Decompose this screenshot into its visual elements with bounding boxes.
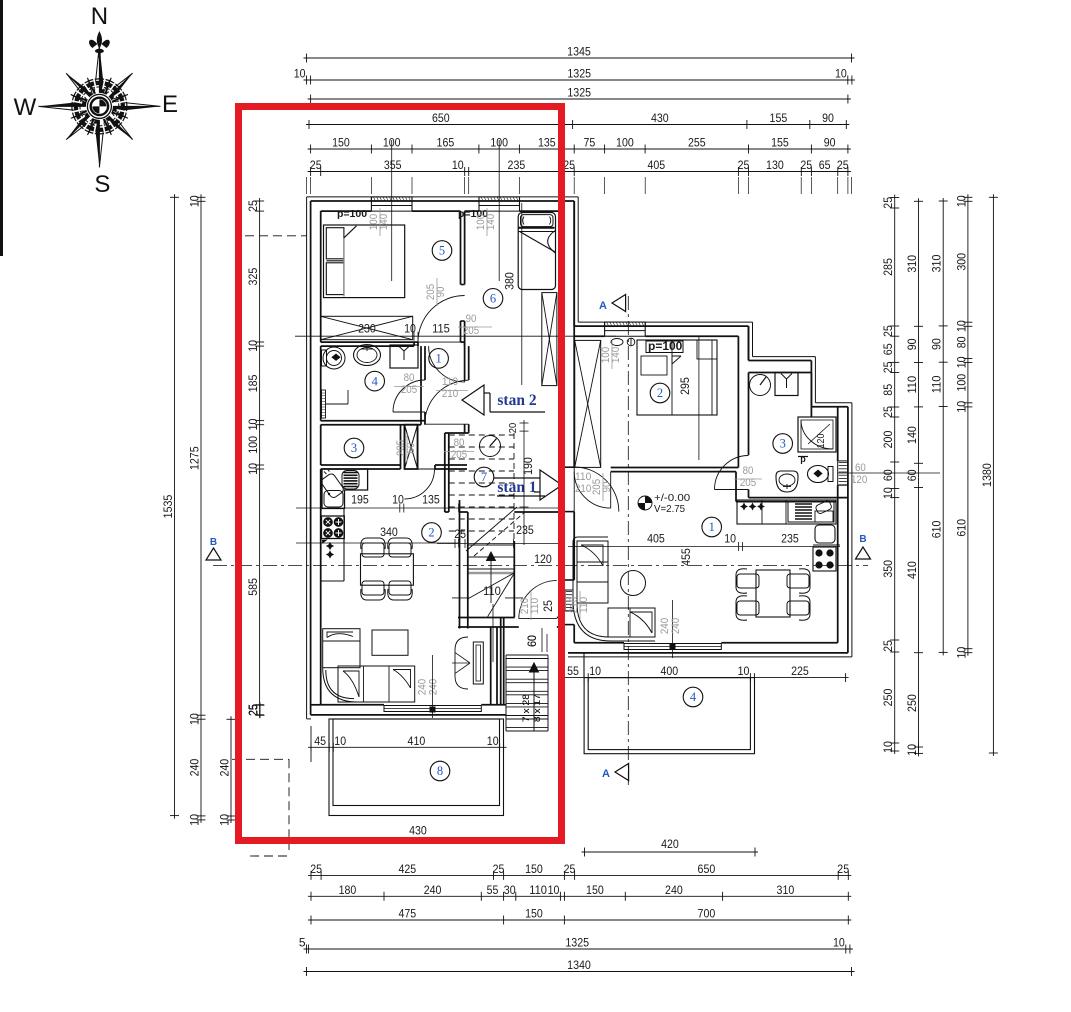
svg-text:25: 25 <box>881 325 895 337</box>
svg-text:150: 150 <box>525 907 543 921</box>
svg-text:1380: 1380 <box>980 463 994 487</box>
svg-text:180: 180 <box>339 883 357 897</box>
svg-text:4: 4 <box>690 690 697 704</box>
svg-text:100: 100 <box>954 374 968 392</box>
svg-text:10: 10 <box>188 814 202 826</box>
svg-text:300: 300 <box>954 253 968 271</box>
svg-text:240: 240 <box>188 758 202 776</box>
svg-text:25: 25 <box>881 361 895 373</box>
svg-text:10: 10 <box>589 664 601 678</box>
svg-text:10: 10 <box>881 487 895 499</box>
svg-text:225: 225 <box>791 664 809 678</box>
svg-text:155: 155 <box>771 136 789 150</box>
svg-text:425: 425 <box>398 862 416 876</box>
svg-text:W: W <box>14 94 37 121</box>
svg-text:110: 110 <box>930 375 944 393</box>
svg-text:5: 5 <box>299 936 306 950</box>
svg-text:100: 100 <box>616 136 634 150</box>
svg-text:60: 60 <box>855 462 866 474</box>
svg-text:3: 3 <box>780 437 786 451</box>
svg-text:400: 400 <box>660 664 678 678</box>
svg-text:p: p <box>800 454 806 464</box>
svg-text:410: 410 <box>905 561 919 579</box>
svg-text:10: 10 <box>954 646 968 658</box>
svg-text:60: 60 <box>905 469 919 481</box>
svg-text:110: 110 <box>905 376 919 394</box>
svg-text:155: 155 <box>770 111 788 125</box>
svg-text:610: 610 <box>930 520 944 538</box>
svg-text:610: 610 <box>954 519 968 537</box>
svg-text:310: 310 <box>905 255 919 273</box>
svg-text:1: 1 <box>709 520 715 534</box>
svg-text:140: 140 <box>905 426 919 444</box>
svg-text:310: 310 <box>930 254 944 272</box>
svg-text:55: 55 <box>567 664 579 678</box>
svg-text:10: 10 <box>881 741 895 753</box>
svg-text:A: A <box>599 300 607 312</box>
svg-text:475: 475 <box>398 907 416 921</box>
svg-text:90: 90 <box>822 111 834 125</box>
svg-text:25: 25 <box>310 862 322 876</box>
svg-text:10: 10 <box>738 664 750 678</box>
svg-text:420: 420 <box>661 837 679 851</box>
svg-text:235: 235 <box>781 532 799 546</box>
svg-text:90: 90 <box>930 338 944 350</box>
svg-text:25: 25 <box>881 406 895 418</box>
svg-text:30: 30 <box>504 883 516 897</box>
svg-text:700: 700 <box>698 907 716 921</box>
svg-text:25: 25 <box>881 640 895 652</box>
svg-text:25: 25 <box>564 862 576 876</box>
svg-text:1535: 1535 <box>161 494 175 518</box>
svg-text:10: 10 <box>905 744 919 756</box>
svg-text:10: 10 <box>218 814 232 826</box>
svg-text:405: 405 <box>647 158 665 172</box>
svg-text:430: 430 <box>651 111 669 125</box>
svg-text:10: 10 <box>954 320 968 332</box>
svg-text:405: 405 <box>647 532 665 546</box>
svg-text:90: 90 <box>905 338 919 350</box>
svg-text:80: 80 <box>743 465 754 477</box>
svg-text:350: 350 <box>881 560 895 578</box>
svg-text:B: B <box>859 534 866 545</box>
svg-text:200: 200 <box>881 430 895 448</box>
svg-text:65: 65 <box>881 343 895 355</box>
svg-text:150: 150 <box>525 862 543 876</box>
svg-text:130: 130 <box>766 158 784 172</box>
svg-text:55: 55 <box>487 883 499 897</box>
svg-text:N: N <box>91 3 108 30</box>
svg-text:25: 25 <box>837 158 849 172</box>
svg-text:65: 65 <box>819 158 831 172</box>
svg-text:210: 210 <box>575 483 591 495</box>
svg-text:240: 240 <box>218 759 232 777</box>
svg-text:25: 25 <box>493 862 505 876</box>
svg-text:250: 250 <box>881 688 895 706</box>
svg-text:1275: 1275 <box>188 446 202 470</box>
svg-text:250: 250 <box>905 694 919 712</box>
svg-text:255: 255 <box>688 136 706 150</box>
svg-text:1340: 1340 <box>567 958 591 972</box>
svg-text:E: E <box>162 91 178 118</box>
svg-text:10: 10 <box>954 195 968 207</box>
svg-text:10: 10 <box>548 883 560 897</box>
svg-text:2: 2 <box>657 386 663 400</box>
svg-text:S: S <box>94 171 110 198</box>
svg-text:80: 80 <box>954 336 968 348</box>
svg-text:1325: 1325 <box>567 86 591 100</box>
svg-text:B: B <box>210 537 217 548</box>
svg-text:75: 75 <box>584 136 596 150</box>
svg-text:240: 240 <box>665 883 683 897</box>
svg-text:110: 110 <box>575 471 591 483</box>
svg-text:25: 25 <box>837 862 849 876</box>
svg-text:10: 10 <box>294 67 306 81</box>
svg-text:110: 110 <box>529 883 547 897</box>
svg-text:120: 120 <box>851 474 867 486</box>
svg-text:10: 10 <box>833 936 845 950</box>
svg-text:25: 25 <box>881 197 895 209</box>
svg-text:A: A <box>602 768 610 780</box>
svg-text:25: 25 <box>563 158 575 172</box>
svg-text:650: 650 <box>698 862 716 876</box>
svg-text:1325: 1325 <box>567 67 591 81</box>
svg-text:285: 285 <box>881 258 895 276</box>
svg-text:1345: 1345 <box>567 45 591 59</box>
svg-text:10: 10 <box>188 713 202 725</box>
svg-text:455: 455 <box>679 548 693 566</box>
svg-text:310: 310 <box>777 883 795 897</box>
svg-text:10: 10 <box>954 401 968 413</box>
svg-text:25: 25 <box>800 158 812 172</box>
svg-text:25: 25 <box>738 158 750 172</box>
svg-text:10: 10 <box>954 356 968 368</box>
svg-text:240: 240 <box>424 883 442 897</box>
svg-text:120: 120 <box>816 433 827 448</box>
svg-text:10: 10 <box>724 532 736 546</box>
svg-text:60: 60 <box>881 469 895 481</box>
svg-text:240: 240 <box>670 618 682 634</box>
svg-text:10: 10 <box>835 67 847 81</box>
svg-text:85: 85 <box>881 384 895 396</box>
svg-text:295: 295 <box>678 377 692 395</box>
svg-text:1325: 1325 <box>565 936 589 950</box>
svg-text:90: 90 <box>824 136 836 150</box>
svg-text:150: 150 <box>586 883 604 897</box>
svg-text:V=2.75: V=2.75 <box>654 503 685 515</box>
